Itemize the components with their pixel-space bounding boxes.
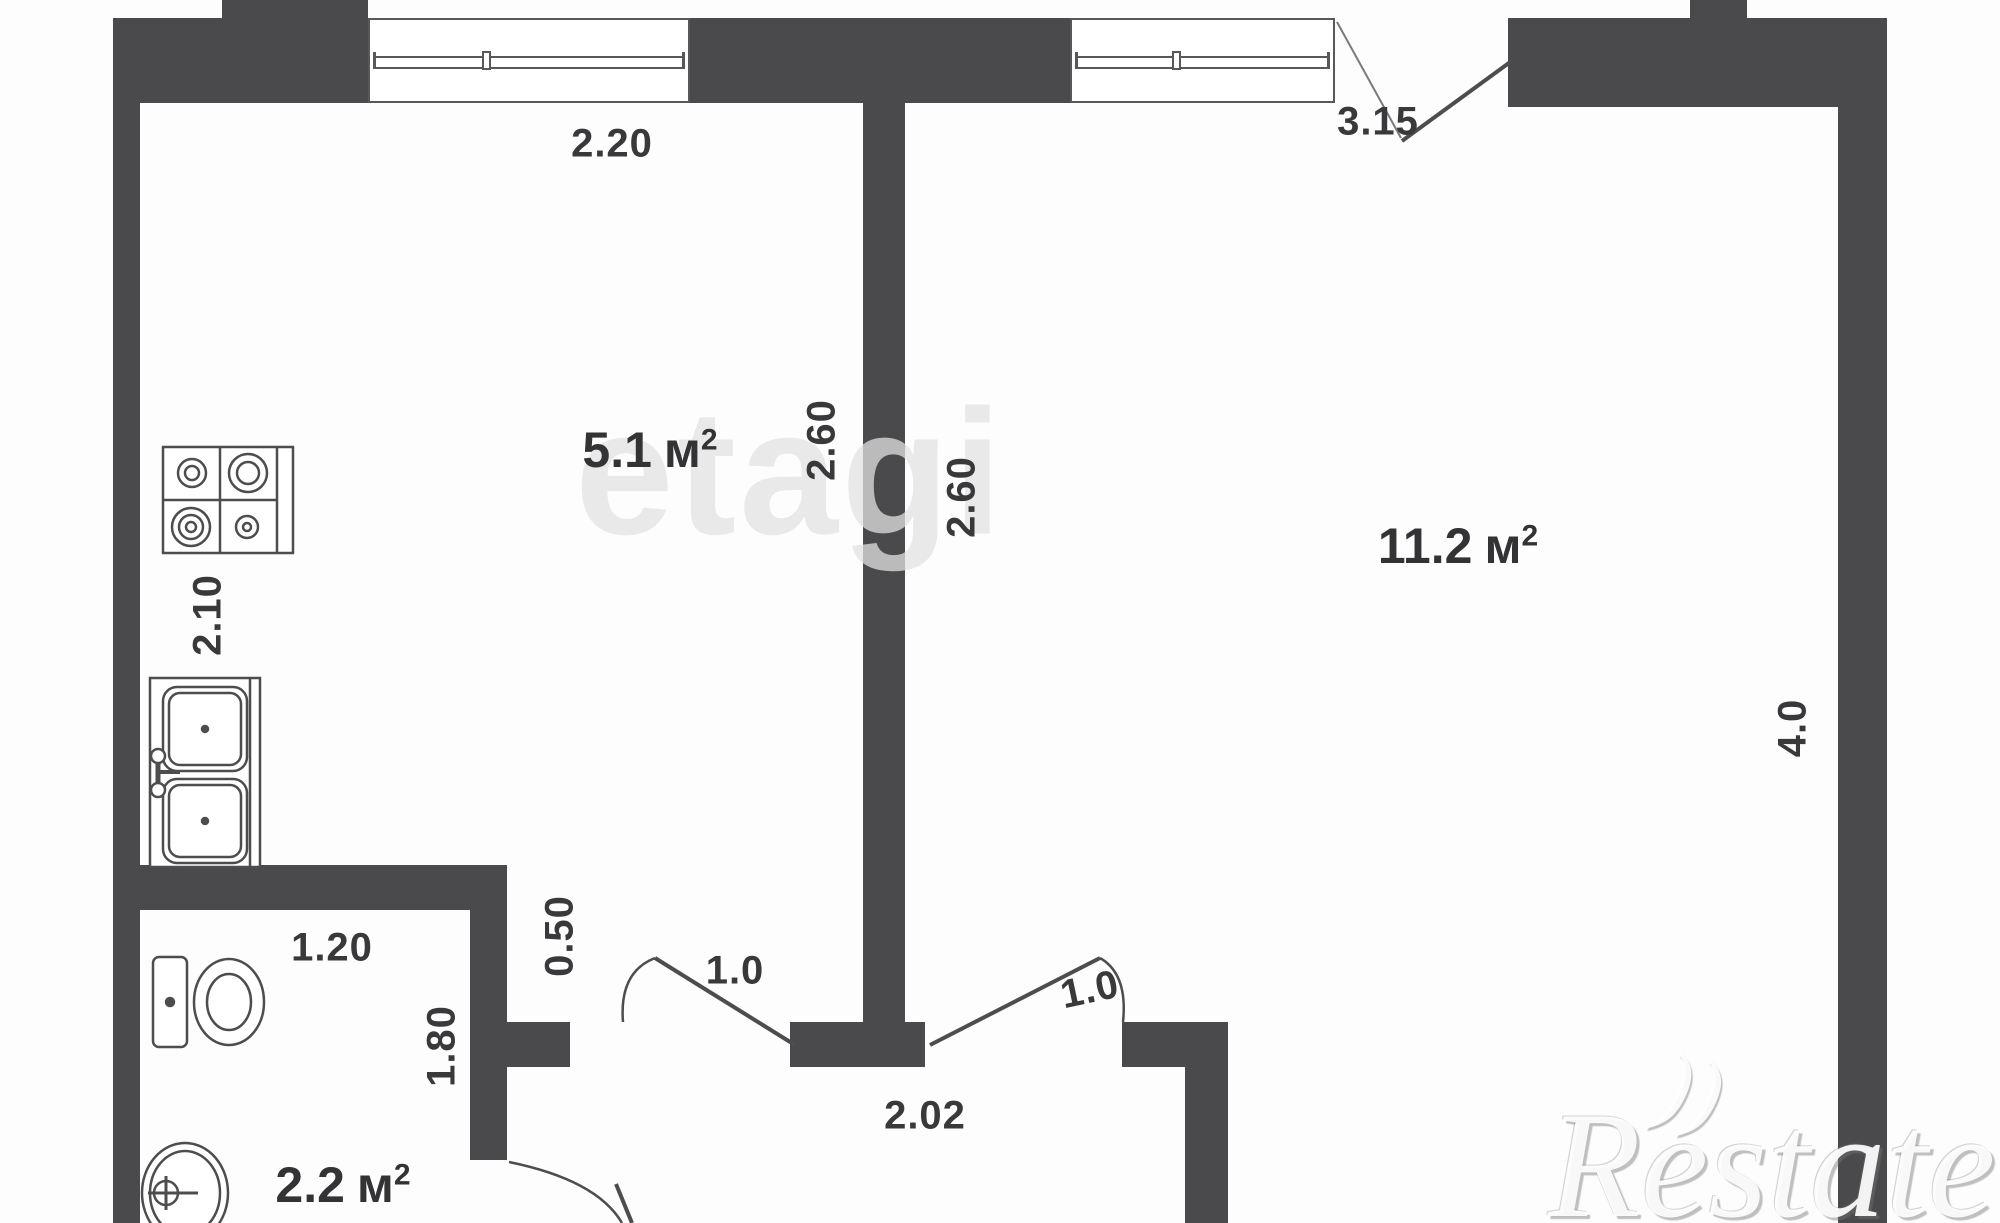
kitchen-area-label: 5.1м2 [582,421,717,479]
washbasin-icon [142,1143,228,1223]
toilet-icon [153,957,264,1047]
kitchen-sink-icon [150,678,260,867]
bathroom-area-label: 2.2м2 [275,1156,410,1214]
restate-watermark: Restate [1548,1078,1995,1223]
dim-kitchen-width: 2.60 [800,399,845,481]
dim-bathroom-width: 1.20 [291,926,373,971]
room-area-label: 11.2м2 [1378,517,1538,575]
stove-icon [163,447,293,553]
dim-room-window: 3.15 [1337,100,1419,145]
dim-hallway: 2.02 [884,1094,966,1139]
dim-room-depth: 4.0 [1771,699,1816,758]
dim-kitchen-door: 1.0 [706,949,765,994]
dim-bathroom-depth: 1.80 [420,1005,465,1087]
kitchen-door-swing-icon [623,958,655,1022]
dim-kitchen-door-offset: 0.50 [538,895,583,977]
dim-kitchen-depth: 2.10 [186,574,231,656]
bathroom-door-swing-icon [509,1162,622,1223]
dim-kitchen-window: 2.20 [571,122,653,167]
floor-plan: 2.20 3.15 2.60 2.60 4.0 2.10 1.20 1.80 0… [0,0,2000,1223]
dim-room-width: 2.60 [940,456,985,538]
